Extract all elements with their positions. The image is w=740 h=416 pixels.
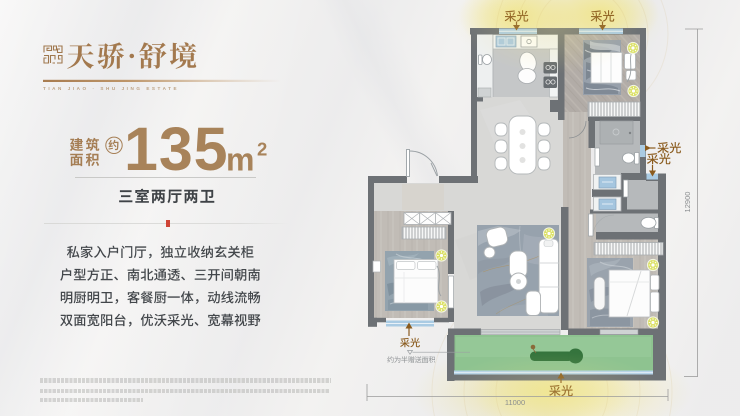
svg-text:11000: 11000: [505, 398, 525, 407]
svg-text:12900: 12900: [683, 192, 692, 213]
